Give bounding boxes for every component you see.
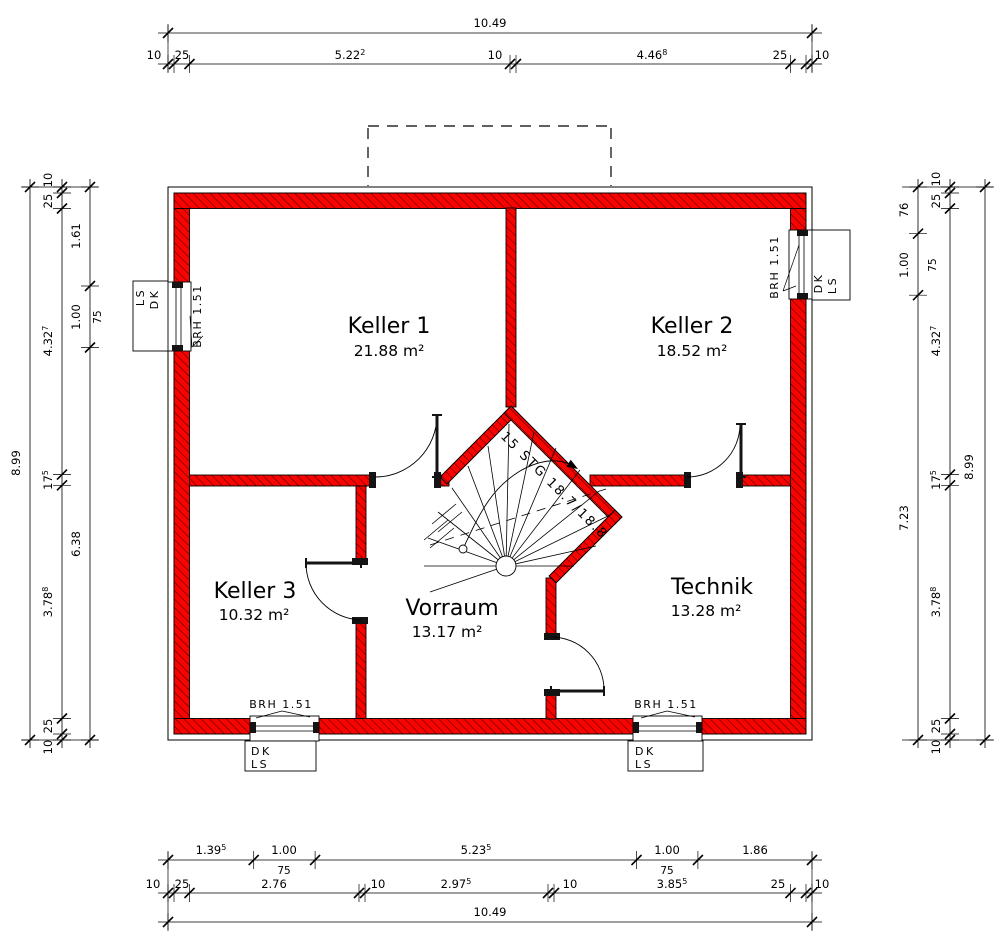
window-type-label: DK bbox=[635, 745, 656, 758]
window-type-label: LS bbox=[134, 288, 147, 306]
window-height-label: 75 bbox=[660, 865, 673, 877]
svg-text:1.395: 1.395 bbox=[196, 843, 227, 857]
room-area-keller1: 21.88 m² bbox=[354, 342, 425, 360]
svg-text:10: 10 bbox=[815, 877, 830, 891]
svg-text:4.327: 4.327 bbox=[929, 326, 943, 357]
floor-plan-canvas: 15 STG 18.7/18.8 bbox=[0, 0, 1000, 945]
room-name-vorraum: Vorraum bbox=[405, 596, 498, 621]
svg-text:10: 10 bbox=[488, 48, 503, 62]
room-name-keller3: Keller 3 bbox=[214, 579, 297, 604]
svg-text:6.38: 6.38 bbox=[69, 531, 83, 557]
window-type-label: DK bbox=[812, 273, 825, 294]
dim-chain-right: 76 1.00 75 7.23 10 25 4.327 175 3.788 25… bbox=[897, 172, 976, 755]
svg-text:4.327: 4.327 bbox=[41, 326, 55, 357]
svg-text:1.86: 1.86 bbox=[742, 843, 768, 857]
dim-total-top: 10.49 bbox=[474, 16, 507, 30]
svg-text:25: 25 bbox=[771, 877, 786, 891]
svg-text:1.00: 1.00 bbox=[69, 304, 83, 330]
room-name-technik: Technik bbox=[670, 575, 753, 600]
sill-height-label: BRH 1.51 bbox=[249, 698, 312, 711]
sill-height-label: BRH 1.51 bbox=[768, 235, 781, 298]
window-type-label: LS bbox=[635, 758, 653, 771]
svg-text:2.975: 2.975 bbox=[441, 877, 472, 891]
svg-text:25: 25 bbox=[773, 48, 788, 62]
svg-text:10: 10 bbox=[563, 877, 578, 891]
svg-text:10: 10 bbox=[41, 173, 55, 188]
overhead-projection-dashed bbox=[368, 126, 611, 186]
svg-text:2.76: 2.76 bbox=[261, 877, 287, 891]
dim-total-left: 8.99 bbox=[9, 450, 23, 476]
svg-text:5.235: 5.235 bbox=[461, 843, 492, 857]
window-type-label: LS bbox=[826, 276, 839, 294]
dim-chain-top: 10.49 10 25 5.222 10 4.468 25 10 bbox=[147, 16, 830, 62]
window-height-label: 75 bbox=[927, 258, 939, 271]
wall-keller1-vorraum bbox=[190, 475, 374, 486]
svg-text:1.61: 1.61 bbox=[69, 223, 83, 249]
window-type-label: DK bbox=[251, 745, 272, 758]
wall-keller3-vorraum bbox=[356, 486, 366, 563]
wall-keller1-keller2 bbox=[506, 208, 516, 407]
svg-text:25: 25 bbox=[929, 194, 943, 209]
window-bottom-right bbox=[633, 716, 702, 741]
wall-vorraum-technik bbox=[546, 578, 556, 638]
svg-text:7.23: 7.23 bbox=[897, 505, 911, 531]
svg-text:4.468: 4.468 bbox=[637, 48, 668, 62]
room-area-keller2: 18.52 m² bbox=[657, 342, 728, 360]
svg-text:76: 76 bbox=[897, 203, 911, 218]
svg-text:175: 175 bbox=[41, 470, 55, 490]
svg-text:1.00: 1.00 bbox=[271, 843, 297, 857]
stair-walkline-start bbox=[459, 545, 467, 553]
svg-text:25: 25 bbox=[175, 877, 190, 891]
svg-text:10: 10 bbox=[147, 48, 162, 62]
svg-text:10: 10 bbox=[41, 740, 55, 755]
svg-text:10: 10 bbox=[929, 740, 943, 755]
floor-plan: 15 STG 18.7/18.8 bbox=[0, 0, 1000, 945]
svg-text:3.788: 3.788 bbox=[41, 587, 55, 618]
svg-text:10: 10 bbox=[371, 877, 386, 891]
svg-text:1.00: 1.00 bbox=[897, 252, 911, 278]
room-name-keller2: Keller 2 bbox=[651, 314, 734, 339]
svg-text:5.222: 5.222 bbox=[335, 48, 366, 62]
dim-chain-bottom: 1.395 1.00 5.235 1.00 1.86 75 75 10 25 2… bbox=[146, 843, 830, 919]
sill-height-label: BRH 1.51 bbox=[191, 284, 204, 347]
svg-text:25: 25 bbox=[175, 48, 190, 62]
svg-text:3.788: 3.788 bbox=[929, 587, 943, 618]
room-area-keller3: 10.32 m² bbox=[219, 606, 290, 624]
window-height-label: 75 bbox=[277, 865, 290, 877]
exterior-wall bbox=[168, 187, 812, 740]
window-left bbox=[166, 282, 191, 351]
svg-text:25: 25 bbox=[41, 719, 55, 734]
dim-total-bottom: 10.49 bbox=[474, 905, 507, 919]
svg-text:10: 10 bbox=[815, 48, 830, 62]
svg-text:25: 25 bbox=[41, 194, 55, 209]
window-bottom-left bbox=[250, 716, 319, 741]
window-height-label: 75 bbox=[92, 310, 104, 323]
svg-text:1.00: 1.00 bbox=[654, 843, 680, 857]
svg-text:10: 10 bbox=[929, 172, 943, 187]
svg-text:25: 25 bbox=[929, 719, 943, 734]
room-name-keller1: Keller 1 bbox=[348, 314, 431, 339]
svg-text:3.855: 3.855 bbox=[657, 877, 688, 891]
room-area-technik: 13.28 m² bbox=[671, 602, 742, 620]
svg-text:175: 175 bbox=[929, 470, 943, 490]
window-type-label: LS bbox=[251, 758, 269, 771]
sill-height-label: BRH 1.51 bbox=[634, 698, 697, 711]
room-area-vorraum: 13.17 m² bbox=[412, 623, 483, 641]
wall-keller2-technik bbox=[590, 475, 687, 486]
stair-newel bbox=[496, 556, 516, 576]
dim-total-right: 8.99 bbox=[962, 454, 976, 480]
svg-text:10: 10 bbox=[146, 877, 161, 891]
window-right bbox=[789, 230, 814, 299]
window-type-label: DK bbox=[148, 289, 161, 310]
